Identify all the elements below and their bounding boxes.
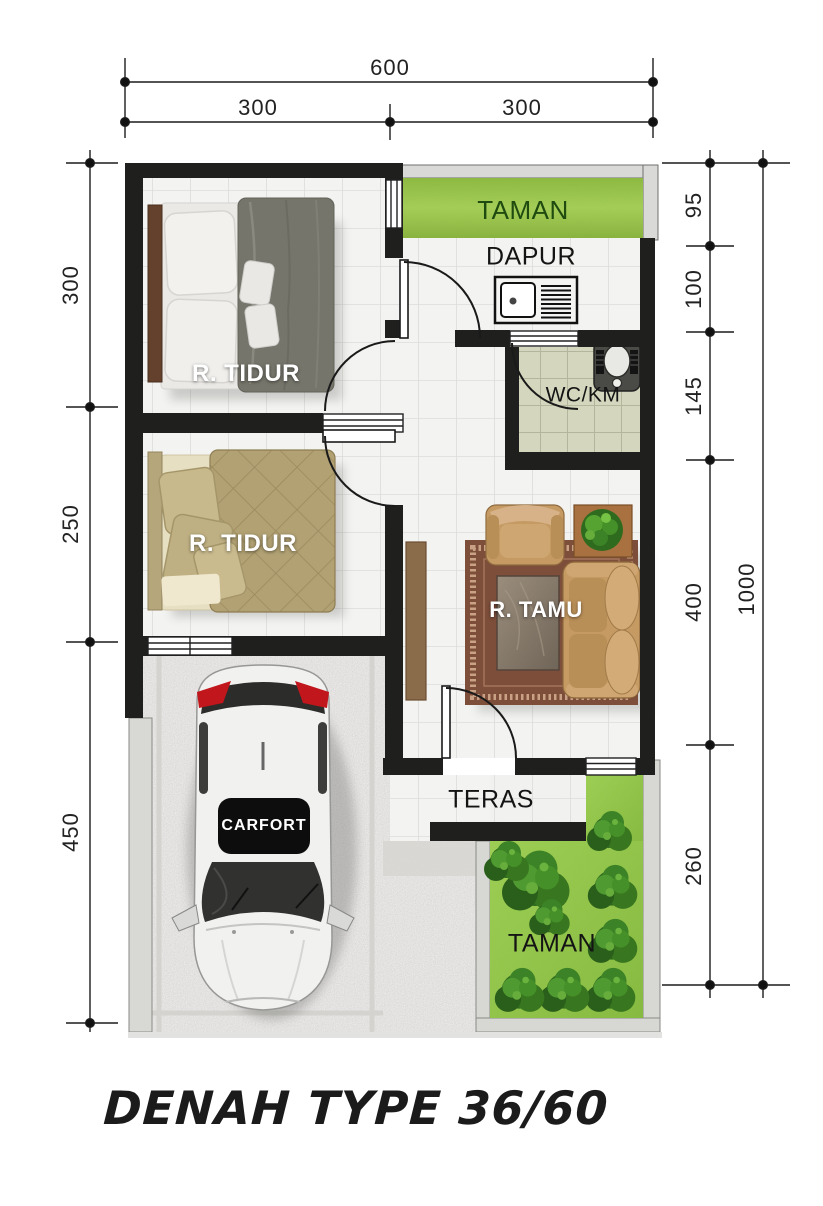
dim-right-260: 260: [683, 846, 705, 886]
page-title: DENAH TYPE 36/60: [102, 1085, 609, 1131]
dim-right-400: 400: [683, 582, 705, 622]
dim-right-145: 145: [683, 376, 705, 416]
kitchen-counter: [495, 277, 577, 323]
armchair: [486, 505, 564, 565]
plant-table: [574, 505, 632, 557]
room-label-bedroom2: R. TIDUR: [189, 532, 297, 556]
coffee-table: [497, 576, 559, 670]
window-bedroom2: [148, 637, 232, 655]
dim-top-right: 300: [502, 97, 542, 119]
dim-top-total: 600: [370, 57, 410, 79]
floor-plan-page: 600 300 300 300 250 450 95 100 145 400 2…: [0, 0, 823, 1206]
dim-right-100: 100: [683, 269, 705, 309]
threshold-wc-door: [510, 331, 578, 346]
room-label-terrace: TERAS: [448, 788, 534, 813]
dim-right-95: 95: [683, 192, 705, 218]
window-front: [586, 758, 636, 775]
dim-left-upper: 300: [60, 265, 82, 305]
window-hall-top: [386, 180, 402, 228]
room-label-bathroom: WC/KM: [546, 385, 621, 406]
dim-left-lower: 450: [60, 812, 82, 852]
room-label-bedroom1: R. TIDUR: [192, 362, 300, 386]
room-label-garden-top: TAMAN: [477, 197, 569, 223]
sofa: [563, 562, 640, 698]
sink-basin: [501, 283, 535, 317]
room-label-living: R. TAMU: [489, 599, 583, 621]
room-label-carport: CARFORT: [221, 818, 306, 834]
room-label-kitchen: DAPUR: [486, 245, 576, 270]
dim-left-middle: 250: [60, 504, 82, 544]
dim-top-left: 300: [238, 97, 278, 119]
car: [172, 665, 357, 1020]
room-label-garden-bottom: TAMAN: [508, 932, 596, 957]
cabinet: [406, 542, 426, 700]
dim-right-total: 1000: [736, 563, 758, 616]
